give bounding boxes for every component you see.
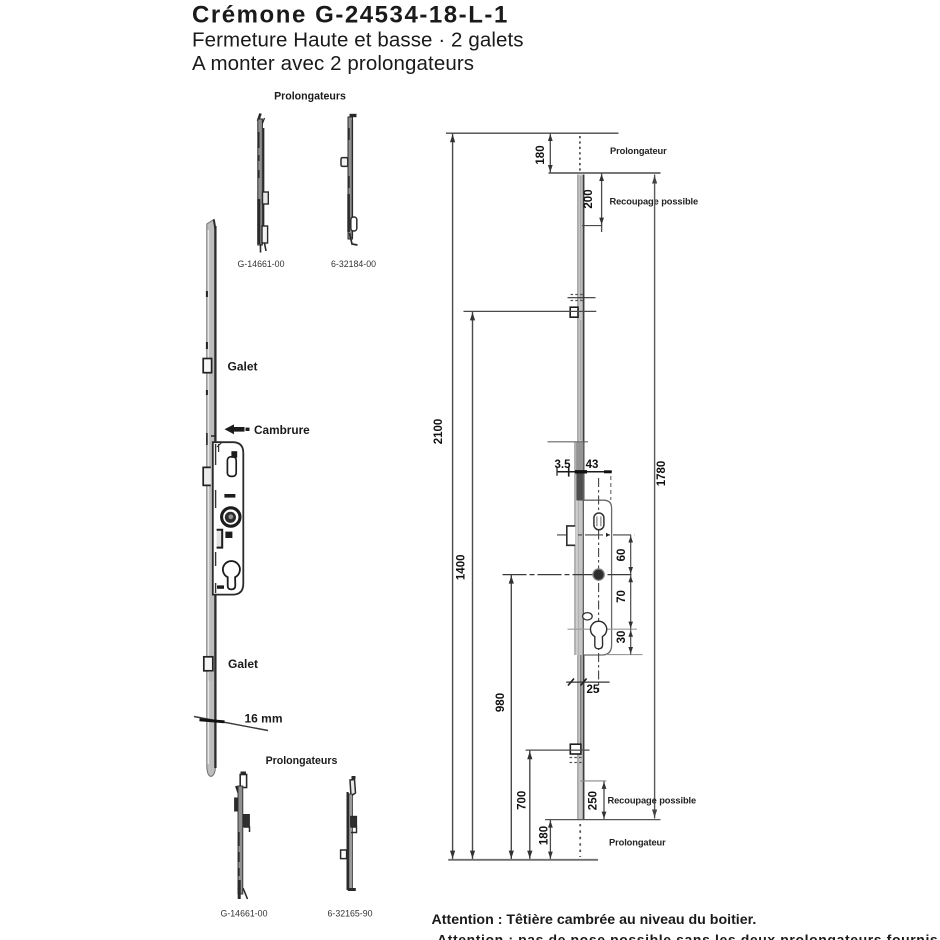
svg-text:200: 200 [583, 189, 595, 208]
svg-text:G-14661-00: G-14661-00 [238, 259, 285, 269]
svg-text:6-32165-90: 6-32165-90 [328, 909, 373, 919]
svg-text:Fermeture Haute et basse · 2 g: Fermeture Haute et basse · 2 galets [192, 29, 524, 52]
svg-text:Recoupage possible: Recoupage possible [608, 796, 697, 806]
svg-text:1780: 1780 [656, 461, 668, 487]
svg-text:Cambrure: Cambrure [254, 423, 310, 437]
svg-text:Crémone G-24534-18-L-1: Crémone G-24534-18-L-1 [192, 2, 509, 29]
svg-text:30: 30 [616, 631, 628, 644]
svg-text:70: 70 [616, 590, 628, 603]
svg-text:Attention : Têtière cambrée au: Attention : Têtière cambrée au niveau du… [432, 912, 757, 928]
svg-text:700: 700 [517, 791, 529, 810]
svg-text:Attention : pas de pose possib: Attention : pas de pose possible sans le… [437, 932, 940, 940]
svg-text:Prolongateur: Prolongateur [609, 838, 666, 848]
svg-text:43: 43 [586, 459, 599, 471]
svg-text:1400: 1400 [456, 555, 468, 581]
svg-text:A monter avec 2 prolongateurs: A monter avec 2 prolongateurs [192, 52, 474, 75]
svg-text:Prolongateurs: Prolongateurs [274, 91, 346, 103]
svg-text:250: 250 [588, 791, 600, 810]
svg-text:Galet: Galet [228, 359, 258, 373]
svg-text:25: 25 [587, 684, 600, 696]
svg-text:60: 60 [616, 549, 628, 562]
svg-text:16 mm: 16 mm [245, 711, 283, 725]
svg-text:Prolongateurs: Prolongateurs [266, 755, 338, 767]
svg-text:2100: 2100 [433, 419, 445, 445]
svg-text:6-32184-00: 6-32184-00 [331, 259, 376, 269]
svg-text:180: 180 [535, 145, 547, 164]
svg-text:3.5: 3.5 [555, 459, 572, 471]
svg-text:180: 180 [539, 826, 551, 845]
svg-text:Galet: Galet [228, 657, 258, 671]
svg-text:Prolongateur: Prolongateur [610, 146, 667, 156]
svg-text:G-14661-00: G-14661-00 [221, 909, 268, 919]
svg-text:980: 980 [495, 693, 507, 712]
svg-text:Recoupage possible: Recoupage possible [610, 197, 699, 207]
